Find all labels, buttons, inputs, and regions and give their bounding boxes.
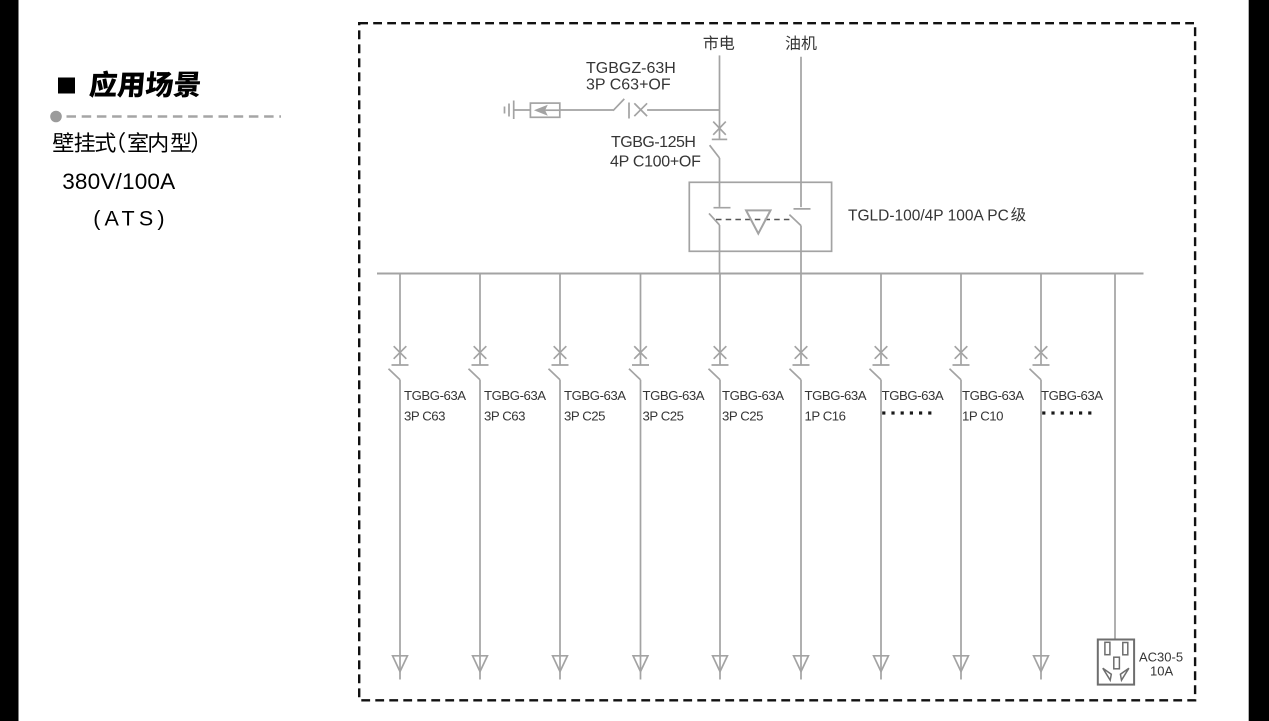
svg-text:3P C25: 3P C25 (722, 408, 763, 423)
svg-text:10A: 10A (1150, 664, 1173, 679)
svg-text:TGBG-63A: TGBG-63A (805, 388, 867, 403)
svg-text:TGBG-125H: TGBG-125H (611, 134, 695, 151)
svg-text:TGBG-63A: TGBG-63A (962, 388, 1024, 403)
svg-text:3P C63: 3P C63 (484, 408, 525, 423)
svg-text:(ATS): (ATS) (93, 207, 169, 231)
svg-text:3P C63+OF: 3P C63+OF (586, 76, 671, 93)
svg-text:4P C100+OF: 4P C100+OF (610, 154, 701, 171)
svg-text:3P C25: 3P C25 (643, 408, 684, 423)
svg-text:380V/100A: 380V/100A (62, 169, 176, 194)
svg-text:TGBG-63A: TGBG-63A (404, 388, 466, 403)
svg-text:1P C10: 1P C10 (962, 408, 1003, 423)
svg-text:3P C25: 3P C25 (564, 408, 605, 423)
svg-text:1P C16: 1P C16 (805, 408, 846, 423)
svg-text:TGBG-63A: TGBG-63A (484, 388, 546, 403)
svg-text:TGBG-63A: TGBG-63A (882, 388, 944, 403)
svg-text:TGBGZ-63H: TGBGZ-63H (586, 60, 676, 77)
svg-text:AC30-5: AC30-5 (1139, 649, 1183, 664)
svg-text:3P C63: 3P C63 (404, 408, 445, 423)
svg-text:TGBG-63A: TGBG-63A (564, 388, 626, 403)
svg-text:TGBG-63A: TGBG-63A (1041, 388, 1103, 403)
svg-text:TGBG-63A: TGBG-63A (722, 388, 784, 403)
svg-text:TGLD-100/4P 100A PC: TGLD-100/4P 100A PC (848, 208, 1009, 225)
svg-text:TGBG-63A: TGBG-63A (643, 388, 705, 403)
